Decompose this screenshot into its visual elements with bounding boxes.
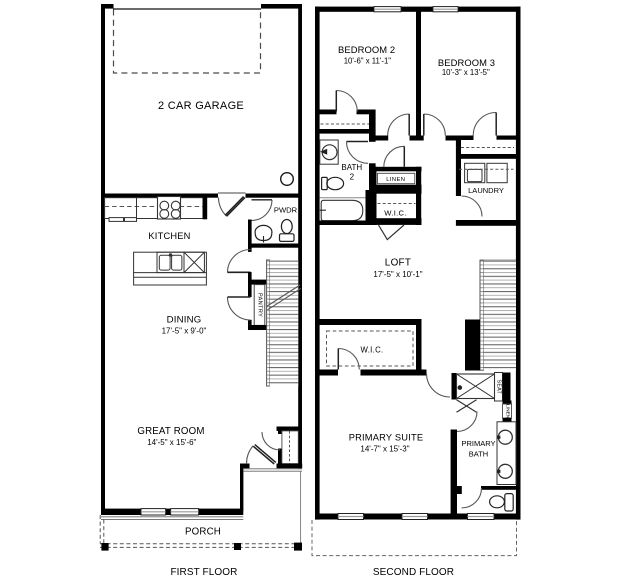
svg-text:14'-7" x 15'-3": 14'-7" x 15'-3" — [360, 445, 409, 454]
svg-text:2 CAR GARAGE: 2 CAR GARAGE — [158, 100, 244, 112]
svg-text:W.I.C.: W.I.C. — [384, 209, 406, 218]
svg-text:LAUNDRY: LAUNDRY — [468, 186, 504, 195]
svg-text:LINEN: LINEN — [505, 404, 511, 419]
svg-text:FIRST FLOOR: FIRST FLOOR — [170, 567, 237, 578]
svg-text:BATH: BATH — [341, 163, 362, 172]
svg-text:10'-3" x 13'-5": 10'-3" x 13'-5" — [442, 68, 490, 77]
svg-text:BATH: BATH — [469, 449, 488, 458]
svg-text:14'-5" x 15'-6": 14'-5" x 15'-6" — [147, 438, 196, 447]
svg-text:LINEN: LINEN — [386, 177, 405, 183]
svg-text:PRIMARY SUITE: PRIMARY SUITE — [349, 433, 424, 443]
svg-text:KITCHEN: KITCHEN — [148, 231, 190, 241]
svg-text:PRIMARY: PRIMARY — [461, 439, 495, 448]
svg-text:SEAT: SEAT — [495, 380, 501, 395]
svg-text:DINING: DINING — [167, 315, 202, 326]
svg-text:BEDROOM 2: BEDROOM 2 — [338, 44, 395, 55]
svg-text:BEDROOM 3: BEDROOM 3 — [438, 57, 495, 68]
svg-text:2: 2 — [350, 172, 355, 181]
svg-text:SECOND FLOOR: SECOND FLOOR — [373, 567, 454, 578]
svg-text:PORCH: PORCH — [185, 527, 221, 538]
svg-text:GREAT ROOM: GREAT ROOM — [137, 426, 204, 437]
svg-text:W.I.C.: W.I.C. — [360, 345, 383, 354]
svg-text:LOFT: LOFT — [385, 258, 411, 269]
svg-text:PWDR: PWDR — [274, 206, 298, 215]
svg-text:PANTRY: PANTRY — [257, 293, 263, 317]
svg-text:17'-5" x 10'-1": 17'-5" x 10'-1" — [373, 270, 422, 279]
svg-text:10'-6" x 11'-1": 10'-6" x 11'-1" — [344, 57, 392, 66]
svg-text:17'-5" x 9'-0": 17'-5" x 9'-0" — [162, 326, 207, 335]
